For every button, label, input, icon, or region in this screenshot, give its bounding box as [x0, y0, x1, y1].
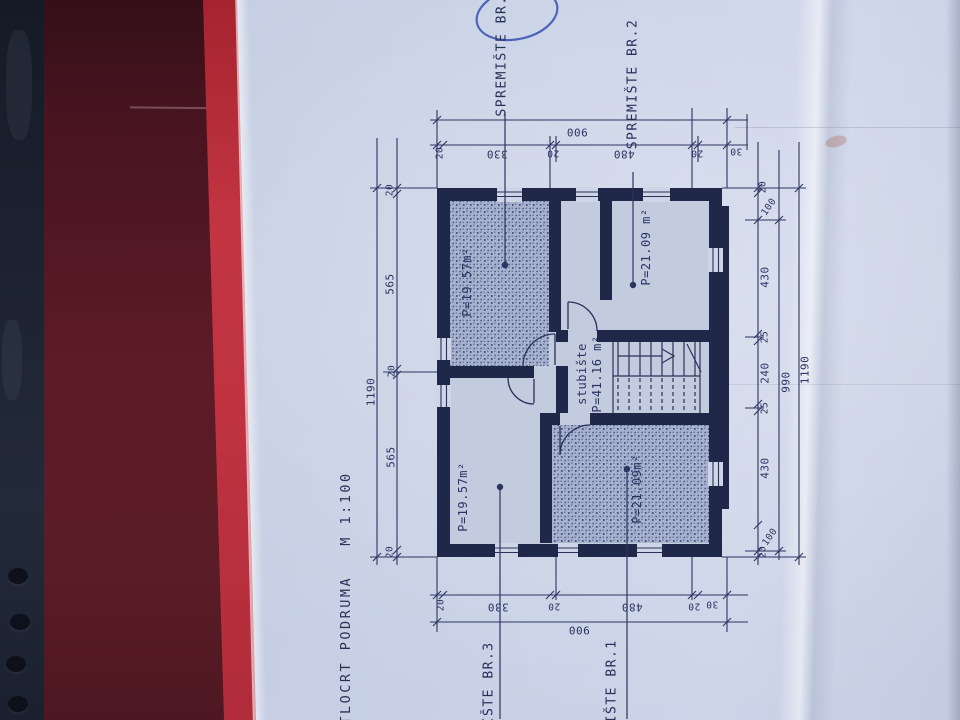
dim-right-240: 240 [759, 362, 772, 383]
label-spremiste-br: SPREMIŠTE BR. [495, 0, 510, 117]
dim-top-330: 330 [486, 148, 507, 161]
label-premiste-br1: PREMIŠTE BR.1 [605, 639, 620, 720]
room-label-bottom-left: P=19.57m² [456, 462, 470, 532]
dim-left-20c: 20 [385, 546, 396, 558]
room-label-top-left: P=19.57m² [460, 247, 474, 317]
room-label-staircase: stubište P=41.16 m² [575, 335, 605, 412]
dim-right-20b: 20 [758, 546, 769, 558]
dim-bottom-20a: 20 [436, 599, 447, 611]
dim-bottom-20c: 20 [688, 601, 700, 612]
dim-top-total: 900 [566, 126, 587, 139]
dim-left-565a: 565 [384, 273, 397, 294]
dim-top-30: 30 [730, 146, 742, 157]
dim-right-430a: 430 [759, 266, 772, 287]
drawing-title: TLOCRT PODRUMAM 1:100 [338, 471, 354, 720]
dim-right-25a: 25 [760, 331, 771, 343]
pen-annotation-circle [471, 0, 562, 48]
dim-left-20a: 20 [385, 184, 396, 196]
dim-bottom-330: 330 [487, 601, 508, 614]
title-scale: M 1:100 [338, 471, 354, 545]
dim-bottom-20b: 20 [548, 601, 560, 612]
dim-right-20a: 20 [758, 181, 769, 193]
plan-drawing: SPREMIŠTE BR. SPREMIŠTE BR.2 PREMIŠTE BR… [0, 0, 960, 720]
dim-right-25b: 25 [760, 402, 771, 414]
dim-top-20c: 20 [691, 148, 703, 159]
dim-left-total: 1190 [365, 378, 378, 407]
dim-left-565b: 565 [385, 446, 398, 467]
dim-bottom-total: 900 [568, 624, 589, 637]
dim-bottom-480: 480 [621, 601, 642, 614]
dim-top-20a: 20 [435, 147, 446, 159]
label-premiste-br3: PREMIŠTE BR.3 [482, 641, 497, 720]
room-label-bottom-right: P=21.09m² [630, 454, 644, 524]
title-text: TLOCRT PODRUMA [338, 576, 354, 720]
staircase-area: P=41.16 m² [590, 335, 605, 412]
floor-plan [0, 0, 960, 720]
dim-right-430b: 430 [759, 457, 772, 478]
dim-bottom-30: 30 [706, 599, 718, 610]
room-label-top-right: P=21.09 m² [639, 208, 653, 285]
photo-of-floor-plan: SPREMIŠTE BR. SPREMIŠTE BR.2 PREMIŠTE BR… [0, 0, 960, 720]
dim-left-20b: 20 [387, 365, 398, 377]
dim-top-20b: 20 [547, 148, 559, 159]
label-spremiste-br2: SPREMIŠTE BR.2 [626, 19, 641, 150]
dim-right-subtotal: 990 [780, 371, 793, 392]
dim-right-total: 1190 [799, 356, 812, 385]
staircase-name: stubište [575, 335, 590, 412]
dim-top-480: 480 [613, 148, 634, 161]
